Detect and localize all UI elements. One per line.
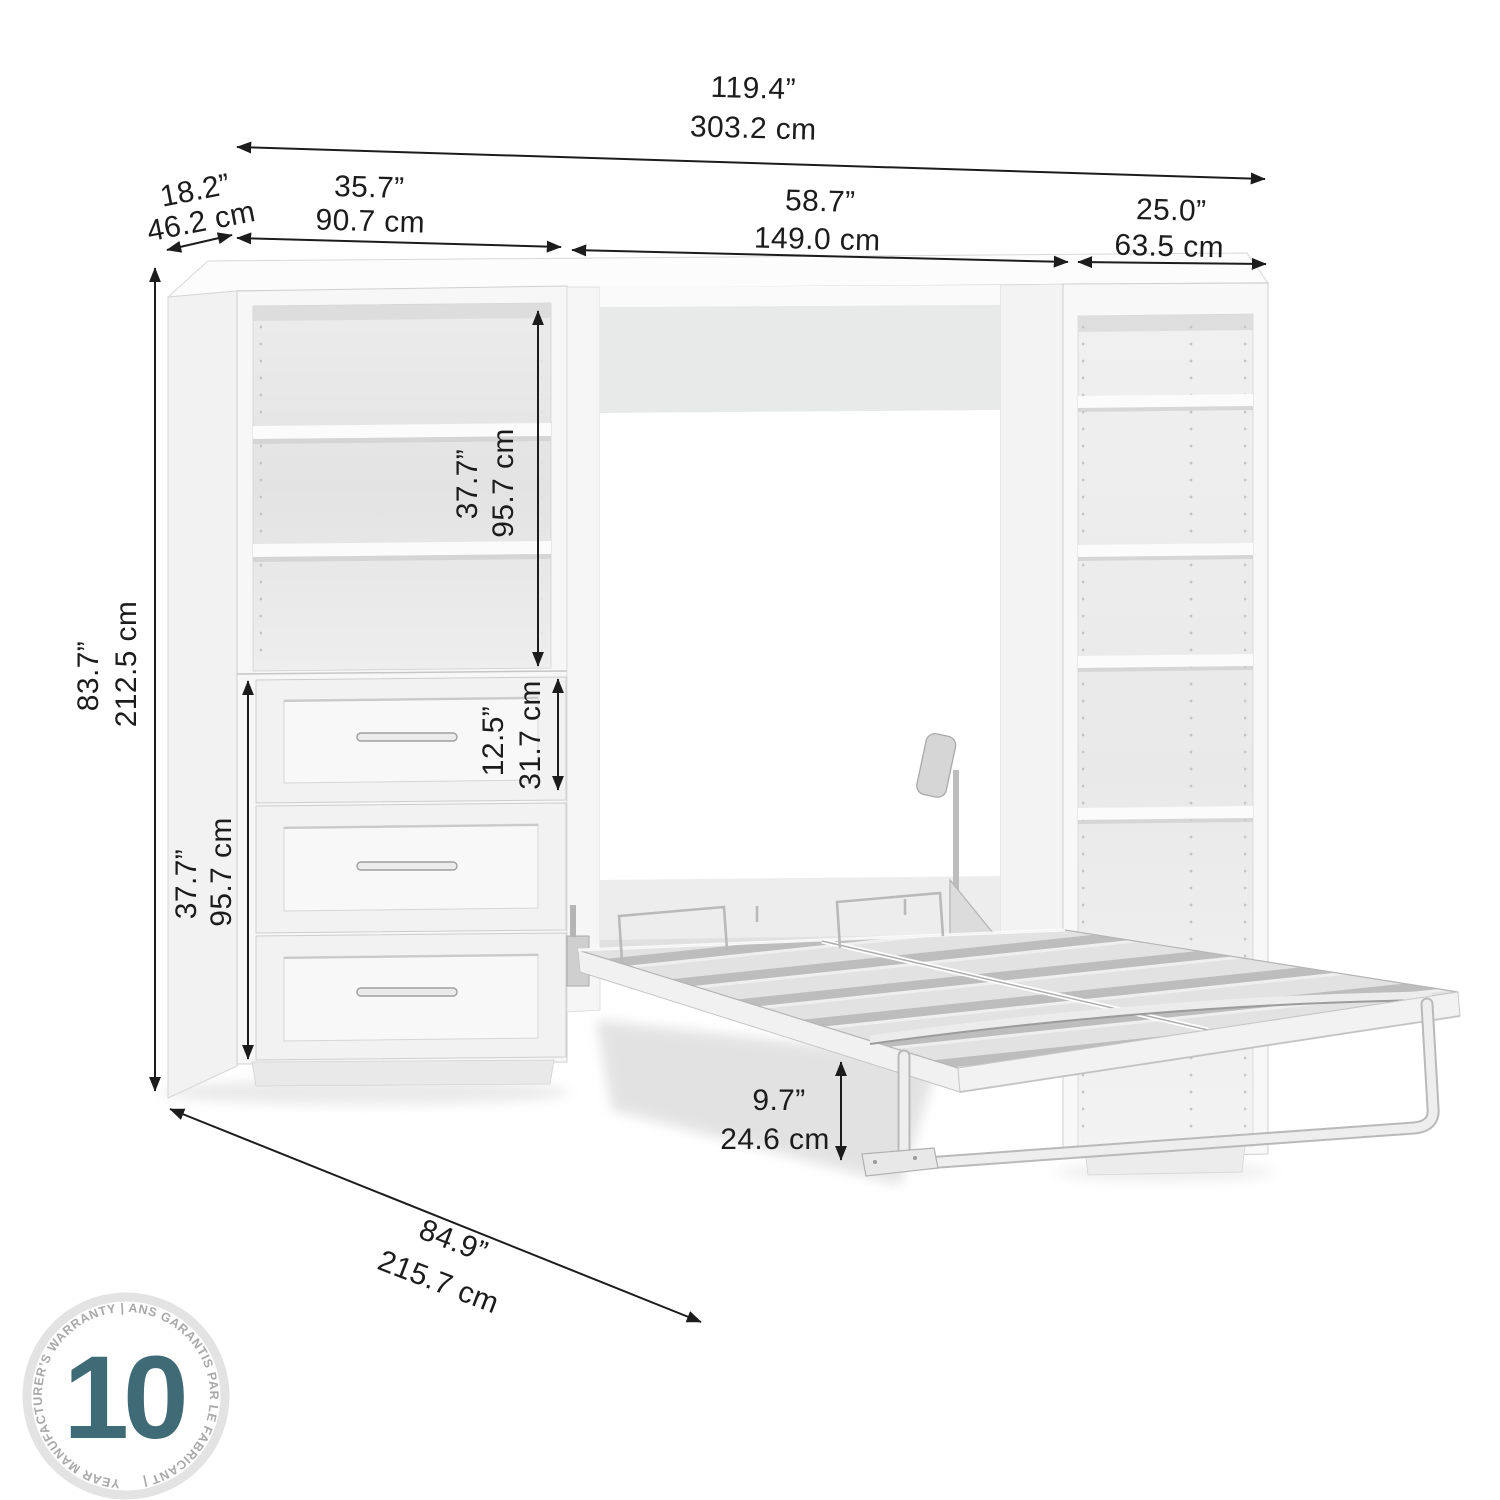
drawer-handle xyxy=(357,862,457,870)
dim-drawer-section-cm: 95.7 cm xyxy=(205,817,238,927)
shelf xyxy=(253,541,551,562)
dim-clearance-in: 9.7” xyxy=(752,1084,805,1117)
cabinet-left-stile xyxy=(567,287,600,1012)
shelf xyxy=(1078,806,1253,824)
shelf xyxy=(1078,543,1253,561)
dim-clearance-cm: 24.6 cm xyxy=(720,1123,830,1156)
dim-right-width-in: 25.0” xyxy=(1136,193,1207,228)
dim-height-in: 83.7” xyxy=(72,641,105,711)
plinth xyxy=(252,1060,554,1086)
dim-left-width-cm: 90.7 cm xyxy=(315,203,425,239)
dim-overall-width-cm: 303.2 cm xyxy=(690,110,817,147)
dim-left-width-in: 35.7” xyxy=(334,170,405,205)
dim-right-width-cm: 63.5 cm xyxy=(1114,229,1224,265)
dim-drawer-front-cm: 31.7 cm xyxy=(514,680,547,790)
dim-left-storage-width: 35.7” 90.7 cm xyxy=(237,170,561,247)
dim-drawer-front-in: 12.5” xyxy=(477,706,510,776)
product-dimension-diagram: 119.4” 303.2 cm 18.2” 46.2 cm 35.7” 90.7… xyxy=(0,0,1500,1500)
dim-open-bed-depth: 84.9” 215.7 cm xyxy=(170,1109,701,1322)
badge-number: 10 xyxy=(63,1332,184,1464)
cabinet-back-panel xyxy=(600,410,1000,883)
shelf-pin-holes xyxy=(257,312,262,664)
warranty-badge: YEAR MANUFACTURER’S WARRANTY | ANS GARAN… xyxy=(27,1297,225,1495)
dim-bed-cabinet-width: 58.7” 149.0 cm xyxy=(572,184,1068,262)
diagram-canvas: 119.4” 303.2 cm 18.2” 46.2 cm 35.7” 90.7… xyxy=(0,0,1500,1500)
drawer-handle xyxy=(357,733,457,741)
dim-height-cm: 212.5 cm xyxy=(110,601,143,728)
dim-drawer-section-in: 37.7” xyxy=(170,849,203,919)
cabinet-inner-top xyxy=(600,305,1000,415)
dim-shelf-height-cm: 95.7 cm xyxy=(487,428,520,538)
shelf xyxy=(1078,654,1253,672)
dim-shelf-height-in: 37.7” xyxy=(451,449,484,519)
left-side-panel xyxy=(168,291,237,1098)
drawer xyxy=(256,803,566,933)
dim-overall-height: 83.7” 212.5 cm xyxy=(72,268,155,1091)
dim-bed-width-in: 58.7” xyxy=(785,184,856,219)
shelf xyxy=(1078,394,1253,412)
dim-overall-width-in: 119.4” xyxy=(710,71,796,106)
dim-bed-width-cm: 149.0 cm xyxy=(754,221,881,257)
dim-overall-width: 119.4” 303.2 cm xyxy=(237,71,1265,179)
drawer-handle xyxy=(357,988,457,996)
drawer xyxy=(256,933,566,1060)
